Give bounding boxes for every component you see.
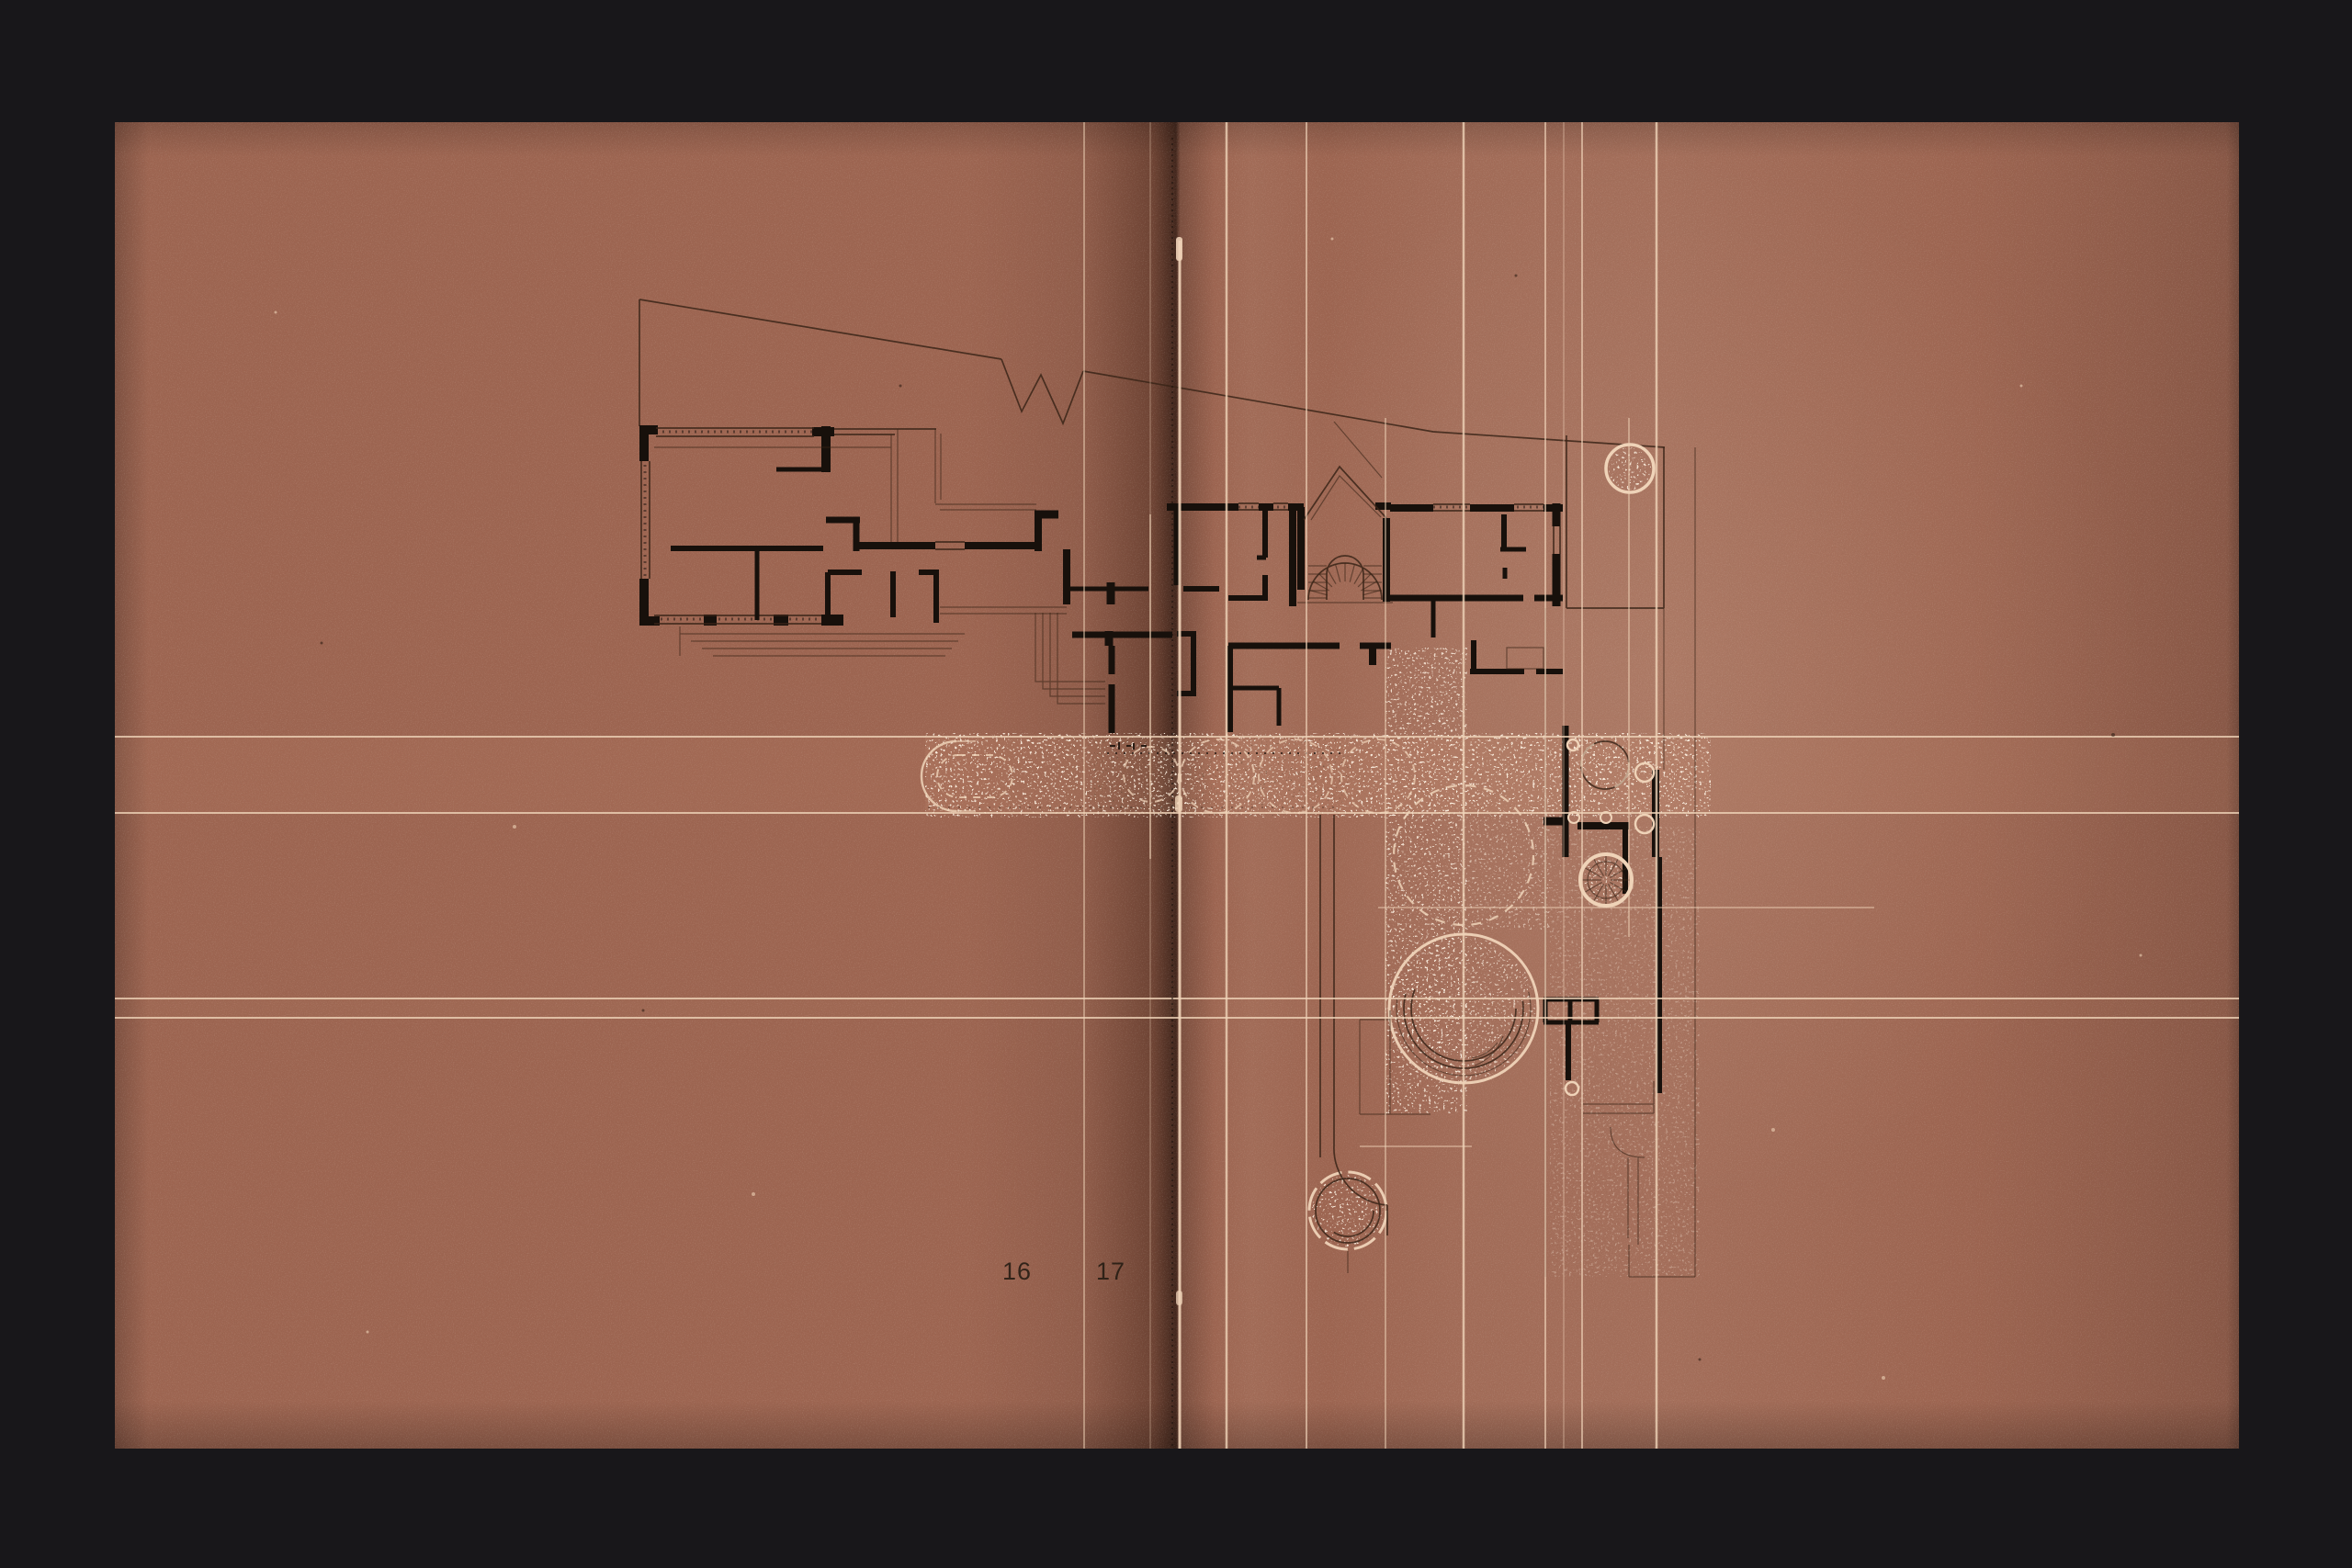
book-photo-scene: 16 17 <box>0 0 2352 1568</box>
right-page-number: 17 <box>1096 1258 1136 1286</box>
site-plan-drawing <box>0 0 2352 1568</box>
paper-chip <box>1176 1291 1182 1305</box>
left-page-number: 16 <box>991 1258 1032 1286</box>
paper-chip <box>1175 795 1182 812</box>
paper-chip <box>1176 237 1182 261</box>
